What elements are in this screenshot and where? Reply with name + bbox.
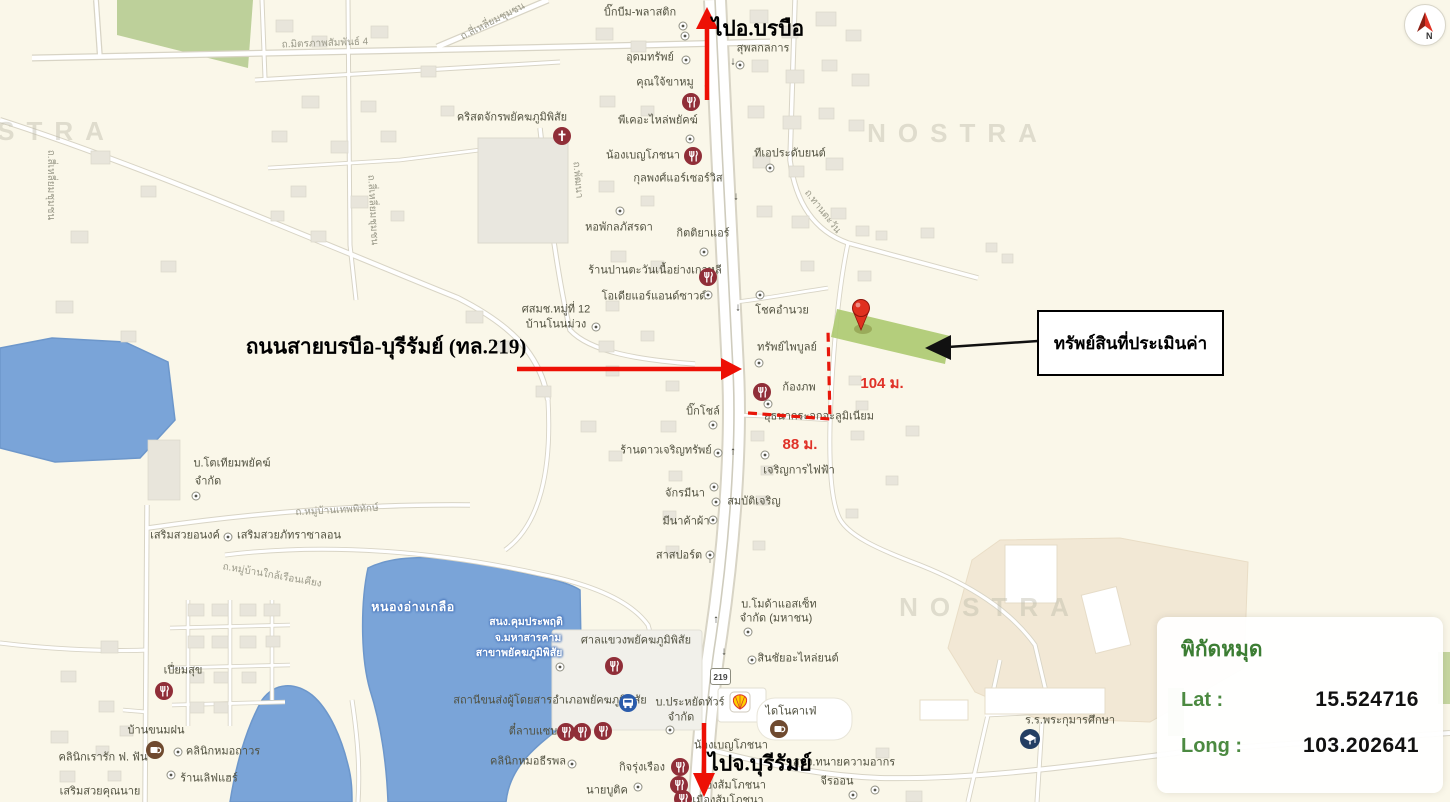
poi-label: กุลพงศ์แอร์เซอร์วิส: [633, 174, 722, 185]
dot-icon: [680, 31, 691, 42]
long-label: Long :: [1181, 735, 1242, 758]
dot-icon: [747, 655, 758, 666]
poi-label: บ้านขนมฝน: [128, 726, 185, 737]
compass-icon[interactable]: N: [1404, 4, 1446, 46]
dot-icon: [633, 782, 644, 793]
road-label: ถ.มิตรภาพสัมพันธ์ 4: [282, 37, 369, 50]
dot-icon: [708, 420, 719, 431]
nostra-watermark: NOSTRA: [867, 120, 1049, 146]
poi-label: จีรออน: [820, 777, 853, 788]
poi-label: สมบัติเจริญ: [727, 497, 781, 508]
dot-icon: [754, 358, 765, 369]
dot-icon: [735, 60, 746, 71]
lat-row: Lat : 15.524716: [1181, 688, 1419, 712]
road-direction-arrow: ↓: [721, 647, 727, 658]
poi-label: ไดโนคาเฟ่: [765, 707, 816, 718]
road-label: ถ.พัฒนา: [570, 161, 583, 199]
poi-label: จำกัด: [195, 477, 221, 488]
water-label: จ.มหาสารคาม: [495, 633, 562, 644]
compass-north-label: N: [1426, 31, 1433, 41]
poi-label: เสริมสวยภัทราซาลอน: [237, 531, 341, 542]
cafe-icon: [768, 718, 790, 740]
restaurant-icon: [571, 721, 593, 743]
poi-label: บ.โตเทียมพยัคฆ์: [193, 459, 270, 470]
poi-label: เสริมสวยคุณนาย: [60, 787, 141, 798]
road-label: ถ.ทานตะวัน: [802, 188, 842, 235]
poi-label: สุพลกลการ: [737, 44, 790, 55]
dot-icon: [743, 627, 754, 638]
cafe-icon: [144, 739, 166, 761]
poi-label: กิจรุ่งเรือง: [619, 763, 665, 774]
poi-label: ทรัพย์ไพบูลย์: [757, 343, 817, 354]
dot-icon: [615, 206, 626, 217]
road-label: ถ.หมู่บ้านใกล้เรือนเคียง: [222, 562, 323, 589]
dot-icon: [711, 497, 722, 508]
road-direction-arrow: ↑: [713, 615, 719, 626]
dot-icon: [699, 247, 710, 258]
dot-icon: [708, 515, 719, 526]
road-label: ถ.สี่เหลี่ยมชุมชน: [365, 175, 379, 246]
restaurant-icon: [682, 145, 704, 167]
poi-label: คลินิกเรารัก ฟ. ฟัน: [59, 753, 148, 764]
poi-label: น้องเบญโภชนา: [606, 151, 680, 162]
restaurant-icon: [680, 91, 702, 113]
poi-label: สินชัยอะไหล่ยนต์: [757, 654, 838, 665]
poi-label: จำกัด: [668, 713, 694, 724]
road-direction-arrow: ↑: [703, 83, 709, 94]
poi-label: บ้านโนนม่วง: [526, 320, 586, 331]
poi-label: บ.ประหยัดทัวร์: [655, 698, 724, 709]
dot-icon: [166, 770, 177, 781]
poi-label: ร้านดาวเจริญทรัพย์: [620, 446, 711, 457]
dot-icon: [685, 134, 696, 145]
nostra-watermark: NOSTRA: [899, 594, 1081, 620]
lat-label: Lat :: [1181, 689, 1223, 712]
poi-label: ก้องภพ: [782, 383, 815, 394]
restaurant-icon: [672, 788, 694, 802]
poi-label: คลินิกหมอธีรพล: [490, 757, 566, 768]
dot-icon: [760, 450, 771, 461]
poi-label: ร้านเลิฟแฮร์: [180, 774, 238, 785]
dot-icon: [191, 491, 202, 502]
dot-icon: [591, 322, 602, 333]
poi-label: โอเดียแอร์แอนด์ซาวด์: [602, 292, 707, 303]
restaurant-icon: [592, 720, 614, 742]
dot-icon: [567, 759, 578, 770]
dot-icon: [223, 532, 234, 543]
shell-icon: [729, 691, 751, 713]
church-icon: [551, 125, 573, 147]
restaurant-icon: [603, 655, 625, 677]
poi-label: ยุธนากระจกอะลูมิเนียม: [764, 412, 874, 423]
poi-label: นายบูติค: [586, 786, 628, 797]
poi-label: บิ๊กบีม-พลาสติก: [604, 8, 676, 19]
road-label: ถ.สี่เหลี่ยมชุมชน: [459, 2, 526, 43]
dot-icon: [848, 790, 859, 801]
nostra-watermark: NOSTRA: [0, 118, 116, 144]
poi-label: น้องส้มโภชนา: [698, 781, 766, 792]
poi-label: บิ๊กโชล์: [686, 407, 720, 418]
dot-icon: [713, 448, 724, 459]
dot-icon: [665, 725, 676, 736]
poi-label: หอพักลภัสรดา: [585, 223, 653, 234]
road-label: ถ.สี่เหลี่ยมชุมชน: [45, 150, 55, 221]
poi-label: ตี๋ลาบแซบ: [509, 727, 558, 738]
poi-label: บ.โมด้าแอสเซ็ท: [741, 600, 816, 611]
poi-label: จักรมีนา: [665, 489, 705, 500]
water-label: สาขาพยัคฆภูมิพิสัย: [476, 648, 563, 659]
poi-label: จำกัด (มหาชน): [740, 614, 812, 625]
coords-title: พิกัดหมุด: [1181, 633, 1419, 666]
poi-label: น้องเบญโภชนา: [694, 741, 768, 752]
dot-icon: [173, 747, 184, 758]
poi-label: คุณใจ้ขาหมู: [636, 78, 694, 89]
poi-label: คลินิกหมอถาวร: [186, 747, 260, 758]
dot-icon: [765, 163, 776, 174]
poi-label: มีนาค้าผ้า: [662, 517, 709, 528]
dot-icon: [705, 550, 716, 561]
water-label: หนองอ่างเกลือ: [371, 601, 455, 614]
long-row: Long : 103.202641: [1181, 734, 1419, 758]
restaurant-icon: [697, 266, 719, 288]
long-value: 103.202641: [1303, 734, 1419, 758]
dot-icon: [755, 290, 766, 301]
road-label: ถ.หมู่บ้านเทพพิทักษ์: [295, 504, 379, 518]
poi-label: สนง.ทนายความอากร: [793, 758, 895, 769]
dot-icon: [709, 482, 720, 493]
poi-label: เสริมสวยอนงค์: [150, 531, 220, 542]
poi-label: ศสมช.หมู่ที่ 12: [522, 305, 591, 316]
road-direction-arrow: ↓: [735, 303, 741, 314]
pin-coordinates-panel: พิกัดหมุด Lat : 15.524716 Long : 103.202…: [1157, 617, 1443, 793]
route-219-shield: 219: [710, 668, 731, 685]
poi-label: เมืองส้มโภชนา: [692, 796, 763, 802]
poi-label: โชคอำนวย: [755, 306, 809, 317]
map-canvas[interactable]: บิ๊กบีม-พลาสติกอุดมทรัพย์สุพลกลการคุณใจ้…: [0, 0, 1450, 802]
dot-icon: [763, 399, 774, 410]
school-icon: [1018, 727, 1042, 751]
dot-icon: [703, 290, 714, 301]
dot-icon: [555, 662, 566, 673]
poi-label: ร.ร.พระกุมารศึกษา: [1025, 716, 1115, 727]
poi-label: พีเคอะไหล่พยัคฆ์: [618, 116, 698, 127]
poi-label: ศาลแขวงพยัคฆภูมิพิสัย: [581, 636, 691, 647]
poi-label: เจริญการไฟฟ้า: [763, 466, 835, 477]
dot-icon: [681, 55, 692, 66]
poi-label: กิตติยาแอร์: [676, 229, 729, 240]
bus-icon: [617, 692, 639, 714]
poi-label: เปี่ยมสุข: [164, 666, 203, 677]
poi-label: สาสปอร์ต: [656, 551, 702, 562]
road-direction-arrow: ↑: [730, 447, 736, 458]
poi-label: ทีเอประดับยนต์: [754, 149, 826, 160]
poi-label: อุดมทรัพย์: [626, 53, 674, 64]
appraised-property-callout: ทรัพย์สินที่ประเมินค่า: [1037, 310, 1224, 376]
dot-icon: [870, 785, 881, 796]
road-direction-arrow: ↓: [733, 192, 739, 203]
water-label: สนง.คุมประพฤติ: [489, 617, 563, 628]
lat-value: 15.524716: [1315, 688, 1419, 712]
poi-label: คริสตจักรพยัคฆภูมิพิสัย: [457, 113, 567, 124]
restaurant-icon: [153, 680, 175, 702]
